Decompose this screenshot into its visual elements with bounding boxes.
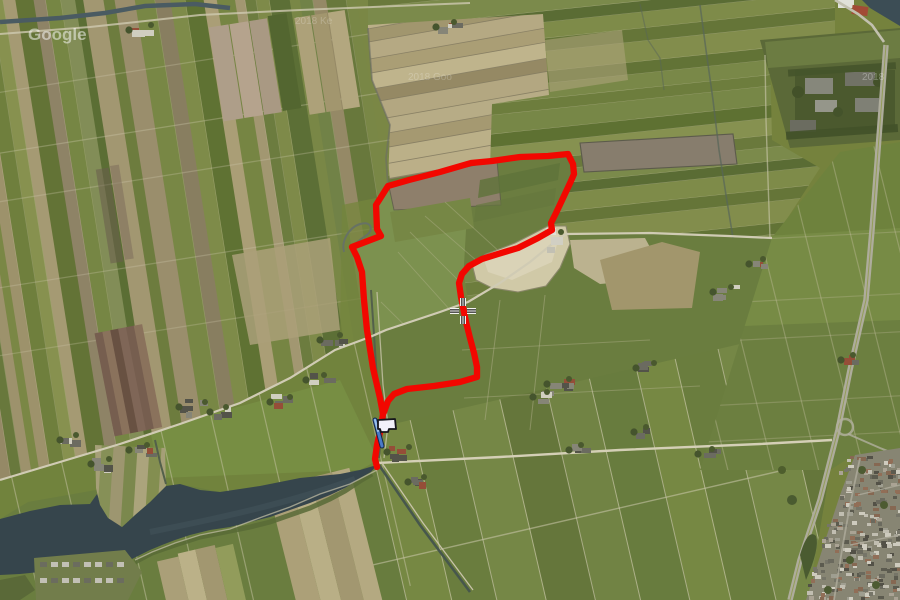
svg-text:2018 Goo: 2018 Goo: [408, 72, 452, 83]
svg-text:2018: 2018: [862, 72, 885, 83]
svg-text:Google: Google: [28, 25, 87, 44]
svg-text:2018 Ke: 2018 Ke: [295, 16, 333, 27]
